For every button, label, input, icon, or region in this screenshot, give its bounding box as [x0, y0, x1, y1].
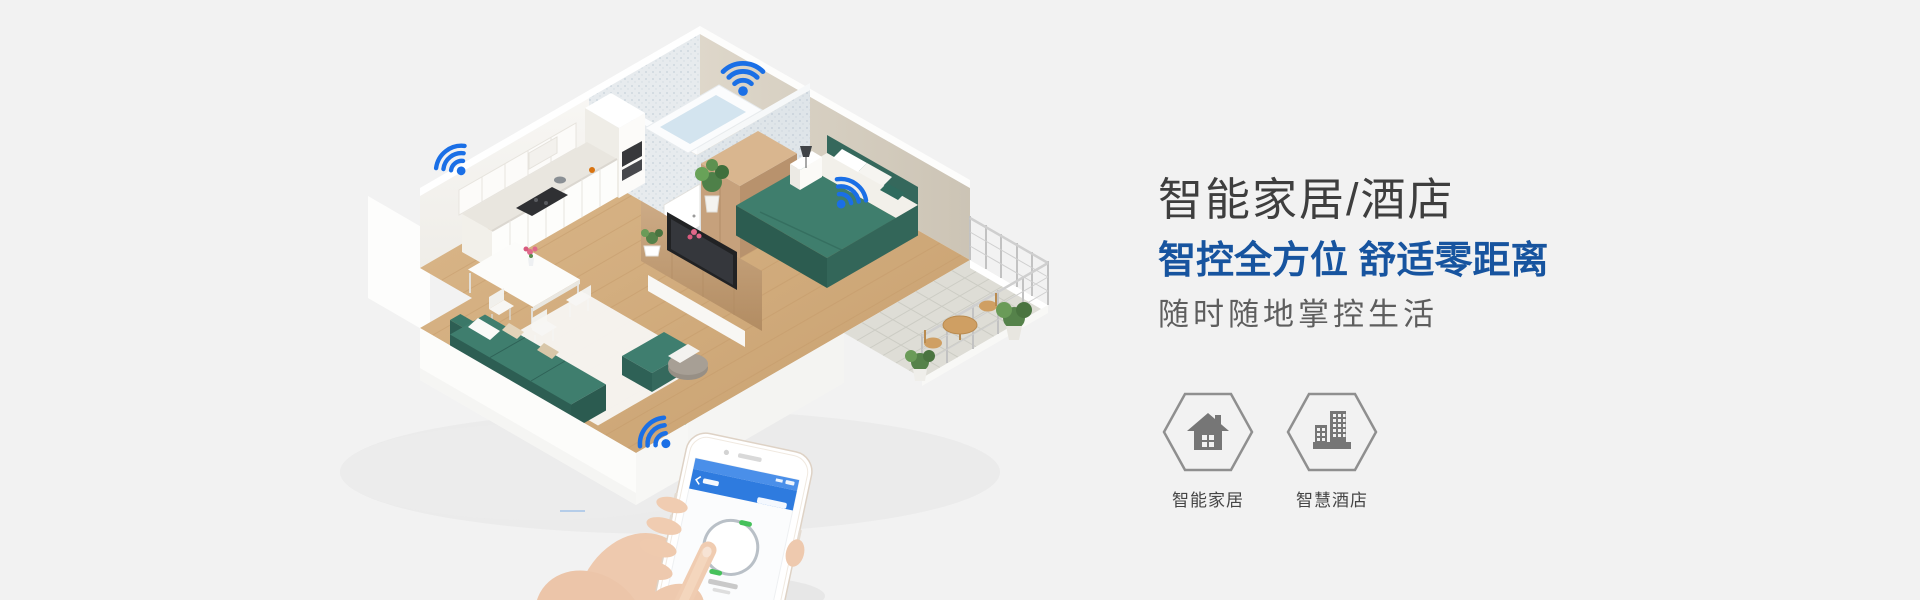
hero-banner: 智能家居/酒店 智控全方位 舒适零距离 随时随地掌控生活 智能家居 — [0, 0, 1920, 600]
house-icon — [1160, 390, 1256, 474]
category-label-smart-hotel: 智慧酒店 — [1296, 486, 1368, 511]
category-smart-home[interactable]: 智能家居 — [1146, 390, 1270, 511]
category-list: 智能家居 — [1146, 390, 1394, 511]
category-label-smart-home: 智能家居 — [1172, 486, 1244, 511]
hero-illustration — [0, 0, 1160, 600]
hero-subtitle: 智控全方位 舒适零距离 — [1158, 240, 1549, 284]
building-icon — [1284, 390, 1380, 474]
hero-tagline: 随时随地掌控生活 — [1158, 296, 1549, 333]
category-smart-hotel[interactable]: 智慧酒店 — [1270, 390, 1394, 511]
page-title: 智能家居/酒店 — [1158, 174, 1549, 226]
smart-home-illustration — [0, 0, 1160, 600]
hero-text-block: 智能家居/酒店 智控全方位 舒适零距离 随时随地掌控生活 — [1158, 174, 1549, 334]
